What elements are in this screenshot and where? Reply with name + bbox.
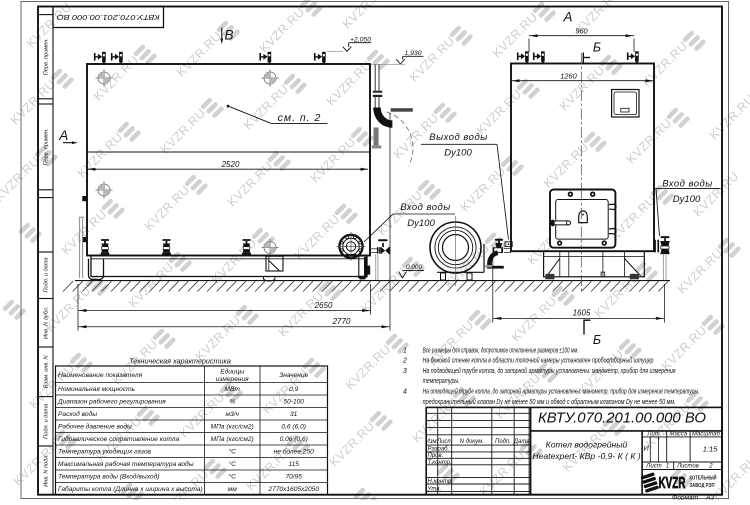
svg-text:Лит.: Лит. [646,432,661,438]
svg-text:KVZR.RU: KVZR.RU [324,58,375,109]
svg-text:Лист: Лист [436,439,452,445]
svg-text:115: 115 [288,461,299,468]
svg-text:+2,050: +2,050 [350,36,371,43]
svg-text:2650: 2650 [314,301,333,310]
svg-text:KVZR.RU: KVZR.RU [209,236,260,287]
svg-text:KVZR.RU: KVZR.RU [241,82,292,133]
svg-text:Разраб.: Разраб. [428,447,450,453]
svg-text:1605: 1605 [573,309,591,318]
svg-text:KVZR.RU: KVZR.RU [458,164,509,215]
svg-text:0,6 (6,0): 0,6 (6,0) [281,424,306,431]
svg-text:КВТУ.070.201.00.000 ВО: КВТУ.070.201.00.000 ВО [538,410,706,427]
svg-text:Формат: Формат [672,494,699,500]
svg-text:50-100: 50-100 [283,399,304,406]
svg-text:0,06 (0,6): 0,06 (0,6) [280,436,308,443]
svg-text:KVZR.RU: KVZR.RU [675,246,726,297]
svg-text:измерения: измерения [216,376,249,383]
svg-text:31: 31 [290,411,298,418]
svg-text:KVZR.RU: KVZR.RU [75,130,126,181]
svg-text:МВт: МВт [225,386,241,393]
svg-text:Взам. инв. N: Взам. инв. N [44,355,50,389]
svg-text:2770: 2770 [332,317,351,326]
svg-text:Максимальная рабочая температу: Максимальная рабочая температура воды [58,460,194,468]
svg-text:Пров.: Пров. [428,453,444,459]
svg-text:2520: 2520 [221,160,240,169]
svg-text:Габариты котла (Длинна х ширин: Габариты котла (Длинна х ширина х высота… [58,485,203,493]
svg-text:Подп.: Подп. [495,439,511,445]
svg-text:1:15: 1:15 [703,445,718,454]
svg-text:1,930: 1,930 [404,50,421,57]
svg-text:Инв. N дубл.: Инв. N дубл. [44,307,50,339]
svg-text:KVZR.RU: KVZR.RU [142,183,193,234]
svg-text:В: В [224,28,233,43]
svg-text:70/95: 70/95 [285,474,302,481]
svg-text:Вход воды: Вход воды [662,179,713,190]
svg-text:KVZR.RU: KVZR.RU [659,323,710,374]
svg-text:KVZR.RU: KVZR.RU [509,294,560,345]
svg-text:Вход воды: Вход воды [400,202,451,213]
svg-text:KVZR.RU: KVZR.RU [308,135,359,186]
svg-text:Dy100: Dy100 [407,218,435,229]
svg-text:Heatexpert- КВр -0,9- К ( К ): Heatexpert- КВр -0,9- К ( К ) [532,451,640,461]
svg-text:KVZR.RU: KVZR.RU [442,241,493,292]
svg-text:KVZR.RU: KVZR.RU [375,188,426,239]
svg-text:KVZR.RU: KVZR.RU [477,448,528,499]
svg-text:Гидравлическое сопративление к: Гидравлическое сопративление котла [58,435,179,443]
svg-text:м3/ч: м3/ч [225,411,239,418]
svg-text:Утв.: Утв. [427,486,442,492]
svg-text:Dy100: Dy100 [673,194,701,205]
svg-text:Т.контр.: Т.контр. [428,460,452,466]
svg-text:0,9: 0,9 [289,386,298,393]
svg-text:KVZR: KVZR [659,475,686,492]
svg-text:Масса: Масса [670,432,688,438]
svg-text:960: 960 [575,27,588,36]
svg-text:KVZR.RU: KVZR.RU [624,116,675,167]
svg-text:Температура уходящих газов: Температура уходящих газов [58,448,151,456]
svg-text:Подп. и дата: Подп. и дата [44,257,50,292]
svg-text:2: 2 [402,358,407,365]
svg-text:Инв. N подл.: Инв. N подл. [44,454,50,487]
svg-text:А3: А3 [705,494,714,500]
svg-text:МПа (кгс/см2): МПа (кгс/см2) [211,436,254,443]
svg-text:4: 4 [403,389,407,396]
svg-text:KVZR.RU: KVZR.RU [257,5,308,56]
svg-text:°С: °С [228,460,236,468]
svg-text:не более 250: не более 250 [274,448,315,456]
svg-text:Едиицы: Едиицы [220,368,244,376]
svg-text:Dy100: Dy100 [444,147,472,158]
svg-text:1: 1 [666,464,669,470]
svg-text:%: % [229,399,235,406]
svg-text:KVZR.RU: KVZR.RU [343,342,394,393]
svg-text:На подводящей трубе котла, д: На подводящей трубе котла, до запорной а… [423,367,676,375]
svg-text:Температура воды (Вход/выход): Температура воды (Вход/выход) [58,473,159,481]
svg-text:На отводящей трубе котла ,до з: На отводящей трубе котла ,до запорной ар… [423,388,700,396]
svg-text:KVZR.RU: KVZR.RU [158,106,209,157]
svg-text:Техническая характеристика: Техническая характеристика [129,356,231,365]
svg-text:Б: Б [593,41,601,55]
svg-text:МПа (кгс/см2): МПа (кгс/см2) [211,424,254,431]
svg-text:Номинальная мощность: Номинальная мощность [58,386,136,393]
svg-text:KVZR.RU: KVZR.RU [541,140,592,191]
svg-text:2: 2 [708,464,713,470]
svg-text:Масштаб: Масштаб [692,432,721,438]
svg-text:Диапазон рабочего регулировани: Диапазон рабочего регулирования [57,398,166,406]
svg-text:KVZR.RU: KVZR.RU [327,419,378,470]
svg-text:Перв. примен.: Перв. примен. [44,128,50,165]
svg-text:1260: 1260 [560,71,577,80]
svg-text:Рабочее давление воды: Рабочее давление воды [58,423,132,431]
svg-text:Котел водогрейный: Котел водогрейный [546,440,628,450]
svg-text:ЗАВОД РЭП: ЗАВОД РЭП [690,483,715,489]
svg-text:°С: °С [228,473,236,481]
svg-text:Лист: Лист [645,464,661,470]
svg-text:Выход воды: Выход воды [429,132,487,143]
svg-text:KVZR.RU: KVZR.RU [177,390,228,441]
svg-text:KVZR.RU: KVZR.RU [11,438,62,489]
svg-text:°С: °С [228,448,236,456]
svg-text:KVZR.RU: KVZR.RU [276,289,327,340]
svg-text:KVZR.RU: KVZR.RU [407,34,458,85]
svg-text:КОТЕЛЬНЫЙ: КОТЕЛЬНЫЙ [690,474,717,482]
svg-text:Дата: Дата [513,439,530,445]
svg-text:предохранительный клапан Dу не: предохранительный клапан Dу не менее 50 … [423,398,676,406]
svg-text:А: А [58,128,68,143]
svg-text:KVZR.RU: KVZR.RU [174,29,225,80]
svg-text:Все размеры для справок, допус: Все размеры для справок, допустимое откл… [423,346,579,354]
svg-text:Перв. примен.: Перв. примен. [44,38,50,75]
svg-text:см. п. 2: см. п. 2 [278,112,322,124]
svg-text:Значение: Значение [279,372,308,379]
svg-text:А: А [562,10,572,25]
svg-text:температуры.: температуры. [423,378,460,385]
svg-text:Расход воды: Расход воды [58,410,97,418]
svg-text:Н.контр.: Н.контр. [428,479,453,485]
svg-text:KVZR.RU: KVZR.RU [126,260,177,311]
svg-text:Листов: Листов [676,464,699,470]
svg-text:КВТУ.070.201.00.000 ВО: КВТУ.070.201.00.000 ВО [57,13,160,22]
svg-text:KVZR.RU: KVZR.RU [474,87,525,138]
svg-text:N докум.: N докум. [460,439,484,445]
svg-text:мм: мм [228,486,238,493]
svg-text:На боковой стенке котла в обла: На боковой стенке котла в области топочн… [423,357,654,365]
svg-text:Б: Б [593,333,601,347]
svg-text:1: 1 [403,347,407,354]
svg-text:KVZR.RU: KVZR.RU [493,371,544,422]
svg-text:Подп. и дата: Подп. и дата [44,404,50,439]
svg-text:KVZR.RU: KVZR.RU [8,77,59,128]
svg-text:И: И [644,444,650,453]
svg-text:KVZR.RU: KVZR.RU [340,0,391,32]
svg-text:2770х1605х2050: 2770х1605х2050 [267,486,319,493]
svg-text:0.000: 0.000 [406,264,422,271]
svg-text:Наименование показателя: Наименование показателя [58,372,143,379]
svg-text:3: 3 [403,368,407,375]
